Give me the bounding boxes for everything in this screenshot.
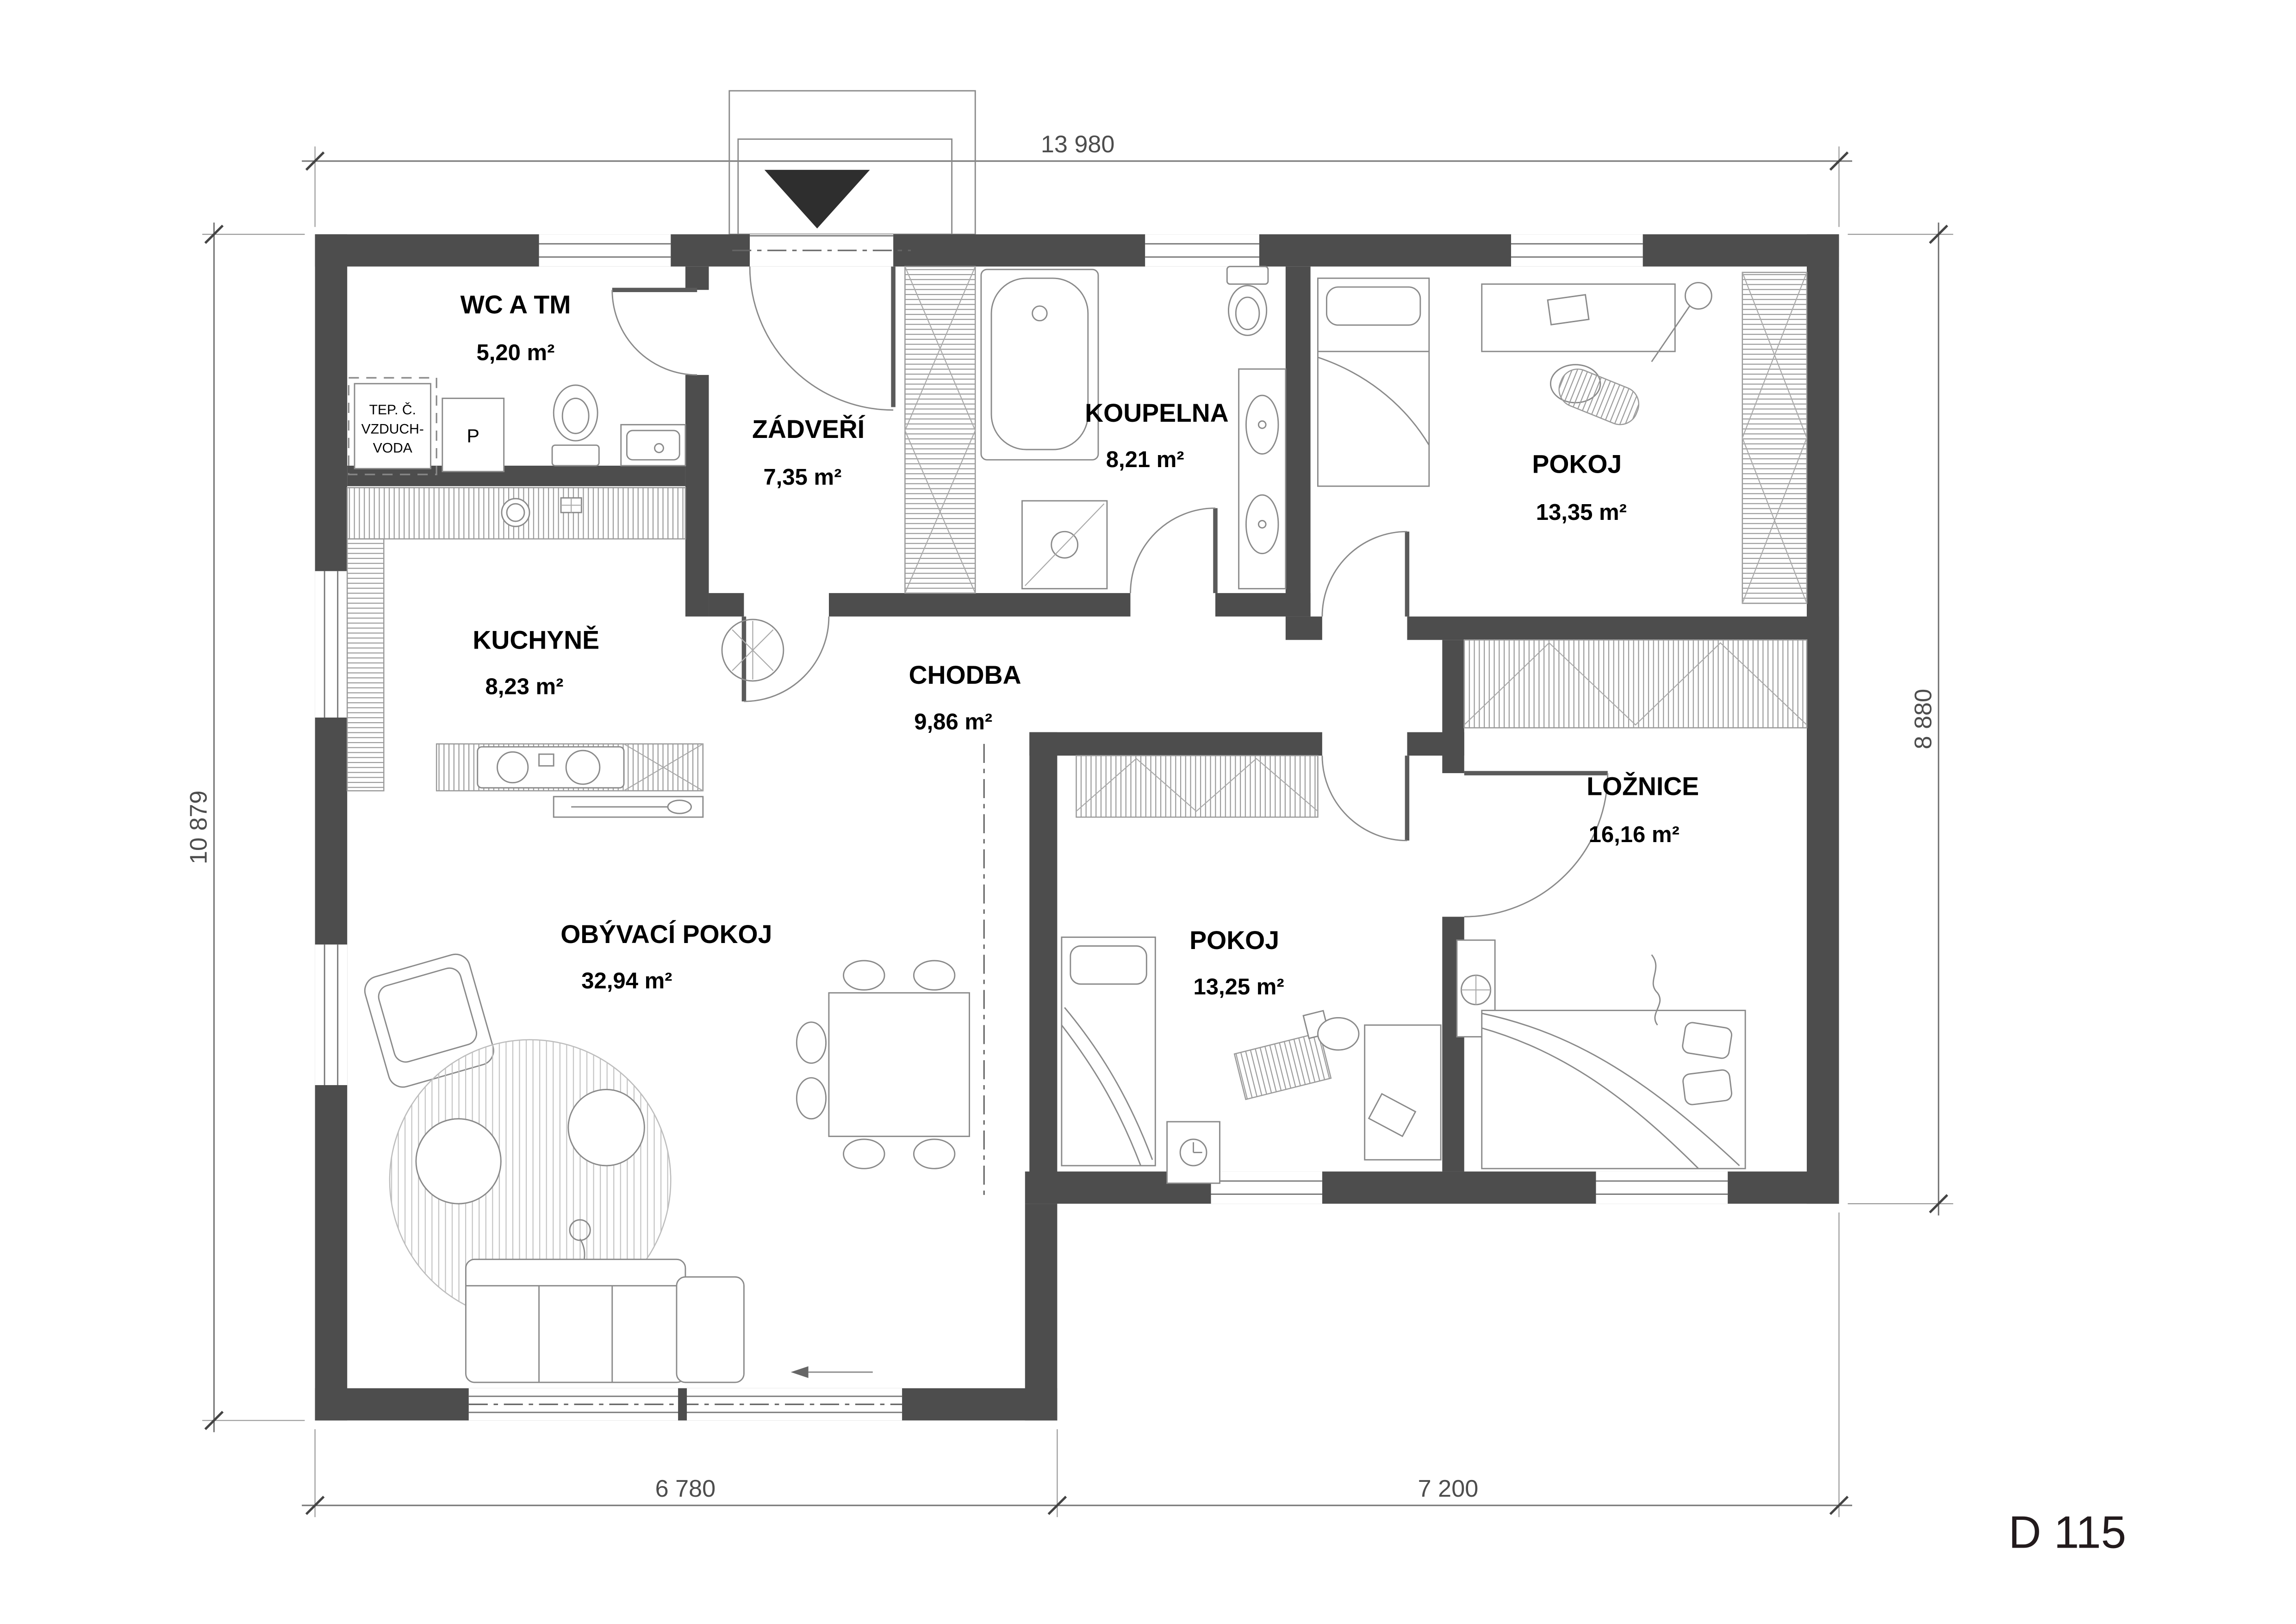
- room-label-loznice: LOŽNICE: [1587, 772, 1699, 801]
- toilet-icon: [1227, 267, 1268, 336]
- room-label-obyvaci: OBÝVACÍ POKOJ: [560, 920, 772, 949]
- room-area-koupelna: 8,21 m²: [1106, 447, 1184, 472]
- pokoj-top-furniture: [1318, 278, 1711, 486]
- room-label-chodba: CHODBA: [909, 661, 1021, 689]
- entrance-arrow-icon: [765, 170, 870, 229]
- room-label-pokoj-top: POKOJ: [1532, 450, 1622, 479]
- wardrobe-zadveri-icon: [905, 267, 975, 593]
- dim-top: 13 980: [1041, 131, 1115, 158]
- dining-table-icon: [796, 961, 969, 1168]
- room-area-wc: 5,20 m²: [477, 340, 555, 365]
- living-room-furniture: [361, 951, 970, 1382]
- room-area-chodba: 9,86 m²: [914, 709, 992, 734]
- zadveri-fixtures: [722, 619, 784, 681]
- floor-plan-drawing: 13 980 10 879 8 880 6 780 7 200: [0, 0, 2296, 1624]
- room-area-zadveri: 7,35 m²: [764, 465, 842, 490]
- window-obyvaci: [315, 944, 348, 1085]
- shower-icon: [1022, 501, 1107, 589]
- bed-icon: [1062, 937, 1155, 1165]
- dim-bottom-left: 6 780: [655, 1475, 716, 1502]
- dim-left: 10 879: [186, 790, 212, 864]
- room-label-kuchyne: KUCHYNĚ: [473, 625, 599, 654]
- heat-pump-label-line3: VODA: [373, 440, 412, 456]
- pantry-label: P: [467, 425, 479, 446]
- room-area-loznice: 16,16 m²: [1589, 822, 1680, 847]
- window-koupelna: [1145, 234, 1259, 267]
- room-area-kuchyne: 8,23 m²: [485, 674, 564, 699]
- window-pokoj-bottom: [1211, 1172, 1322, 1204]
- window-loznice: [1596, 1172, 1728, 1204]
- desk-icon: [1318, 1018, 1441, 1160]
- room-label-zadveri: ZÁDVEŘÍ: [752, 415, 865, 443]
- cooktop-icon: [478, 747, 624, 788]
- room-area-pokoj-top: 13,35 m²: [1536, 500, 1627, 525]
- wardrobe-pokoj-bottom-icon: [1076, 756, 1318, 817]
- washbasin-icon: [621, 425, 685, 466]
- room-label-koupelna: KOUPELNA: [1085, 399, 1229, 427]
- loznice-furniture: [1457, 940, 1745, 1168]
- entrance-porch: [729, 91, 975, 234]
- double-sink-vanity-icon: [1239, 369, 1286, 588]
- dim-right: 8 880: [1910, 689, 1937, 750]
- room-label-wc: WC A TM: [460, 290, 571, 319]
- koupelna-door: [1131, 508, 1215, 617]
- zadveri-chodba-door: [744, 593, 828, 701]
- pokoj-top-door: [1322, 531, 1407, 640]
- rolled-rug-icon: [1554, 364, 1644, 430]
- plan-code: D 115: [2009, 1507, 2126, 1558]
- room-label-pokoj-bottom: POKOJ: [1189, 926, 1279, 955]
- heat-pump-label-line2: VZDUCH-: [361, 421, 424, 437]
- pokoj-bottom-door: [1322, 732, 1407, 841]
- bed-icon: [1318, 278, 1429, 486]
- floor-plan-sheet: 13 980 10 879 8 880 6 780 7 200: [0, 0, 2296, 1624]
- room-area-pokoj-bottom: 13,25 m²: [1194, 974, 1284, 999]
- window-pokoj-top: [1511, 234, 1643, 267]
- entrance-door: [732, 234, 911, 410]
- heat-pump-label-line1: TEP. Č.: [369, 402, 416, 418]
- nightstand-lamp-icon: [1167, 1122, 1220, 1183]
- doormat-icon: [722, 619, 784, 681]
- wardrobe-loznice-icon: [1464, 640, 1807, 728]
- loznice-door: [1442, 773, 1607, 917]
- bathtub-icon: [981, 269, 1098, 460]
- window-kuchyne: [315, 571, 348, 718]
- window-wc: [539, 234, 671, 267]
- kitchen-shelf-icon: [554, 797, 703, 817]
- toilet-icon: [552, 385, 599, 466]
- wardrobe-pokoj-top-icon: [1742, 272, 1807, 603]
- wc-door: [612, 290, 709, 375]
- sofa-icon: [466, 1259, 744, 1382]
- terrace-glass-door: [469, 1388, 902, 1421]
- room-area-obyvaci: 32,94 m²: [581, 968, 672, 993]
- kitchen-counter-left: [347, 539, 384, 791]
- koupelna-fixtures: [981, 267, 1286, 589]
- double-bed-icon: [1482, 955, 1745, 1168]
- terrace-arrow-icon: [791, 1366, 873, 1378]
- dim-bottom-right: 7 200: [1418, 1475, 1479, 1502]
